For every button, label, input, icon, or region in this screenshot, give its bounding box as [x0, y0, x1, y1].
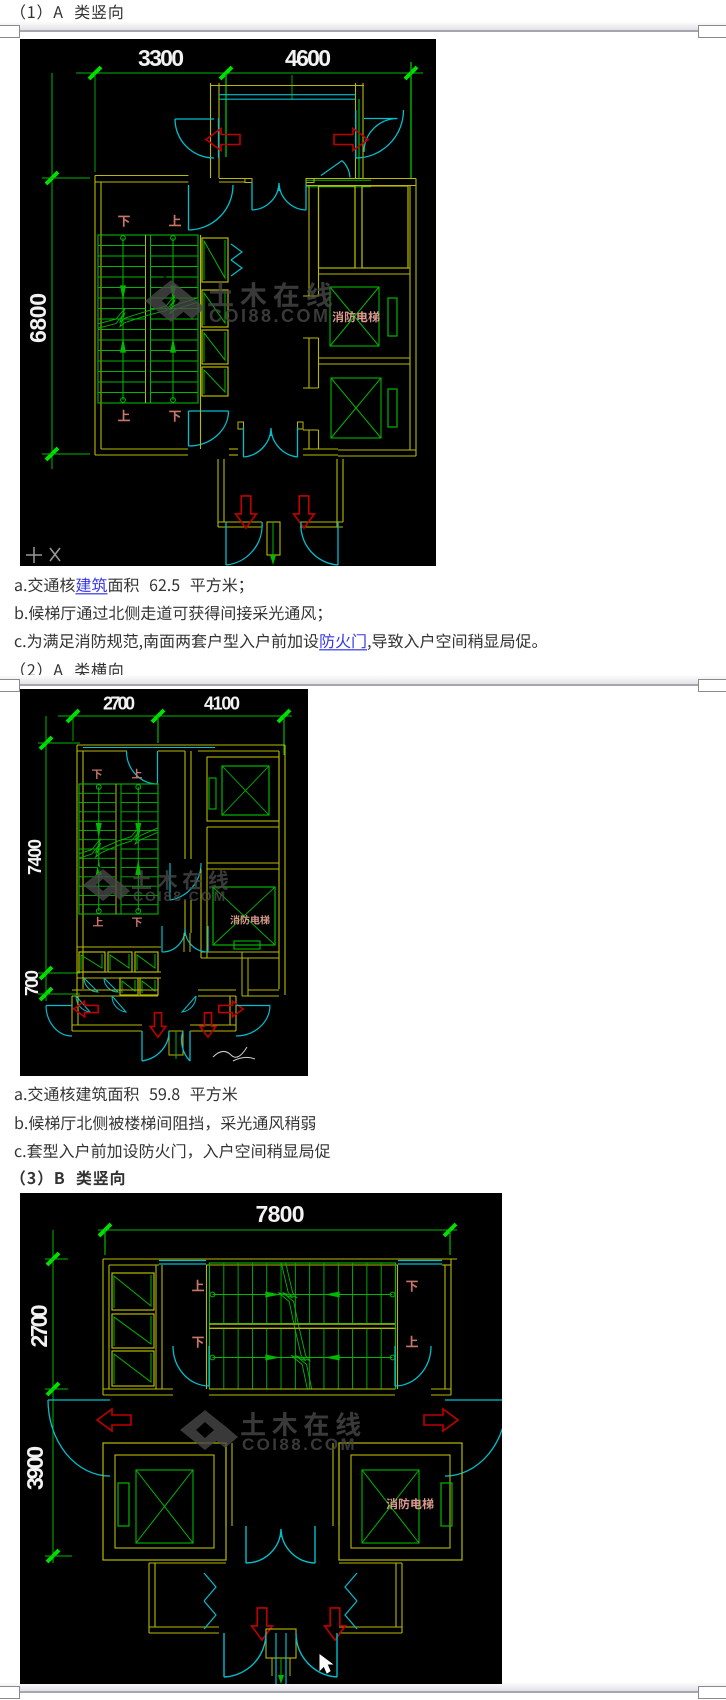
svg-text:COI88.COM: COI88.COM — [242, 1435, 357, 1454]
svg-text:3900: 3900 — [22, 1446, 48, 1490]
svg-text:6800: 6800 — [25, 293, 51, 343]
svg-text:4100: 4100 — [204, 694, 240, 714]
svg-text:2700: 2700 — [26, 1305, 52, 1348]
svg-text:7400: 7400 — [25, 839, 45, 875]
svg-text:4600: 4600 — [285, 45, 331, 71]
svg-text:700: 700 — [22, 970, 42, 996]
svg-text:COI88.COM: COI88.COM — [133, 888, 227, 904]
svg-text:7800: 7800 — [256, 1201, 305, 1227]
svg-text:COI88.COM: COI88.COM — [209, 306, 331, 326]
svg-text:2700: 2700 — [103, 694, 135, 714]
svg-text:3300: 3300 — [138, 45, 184, 71]
